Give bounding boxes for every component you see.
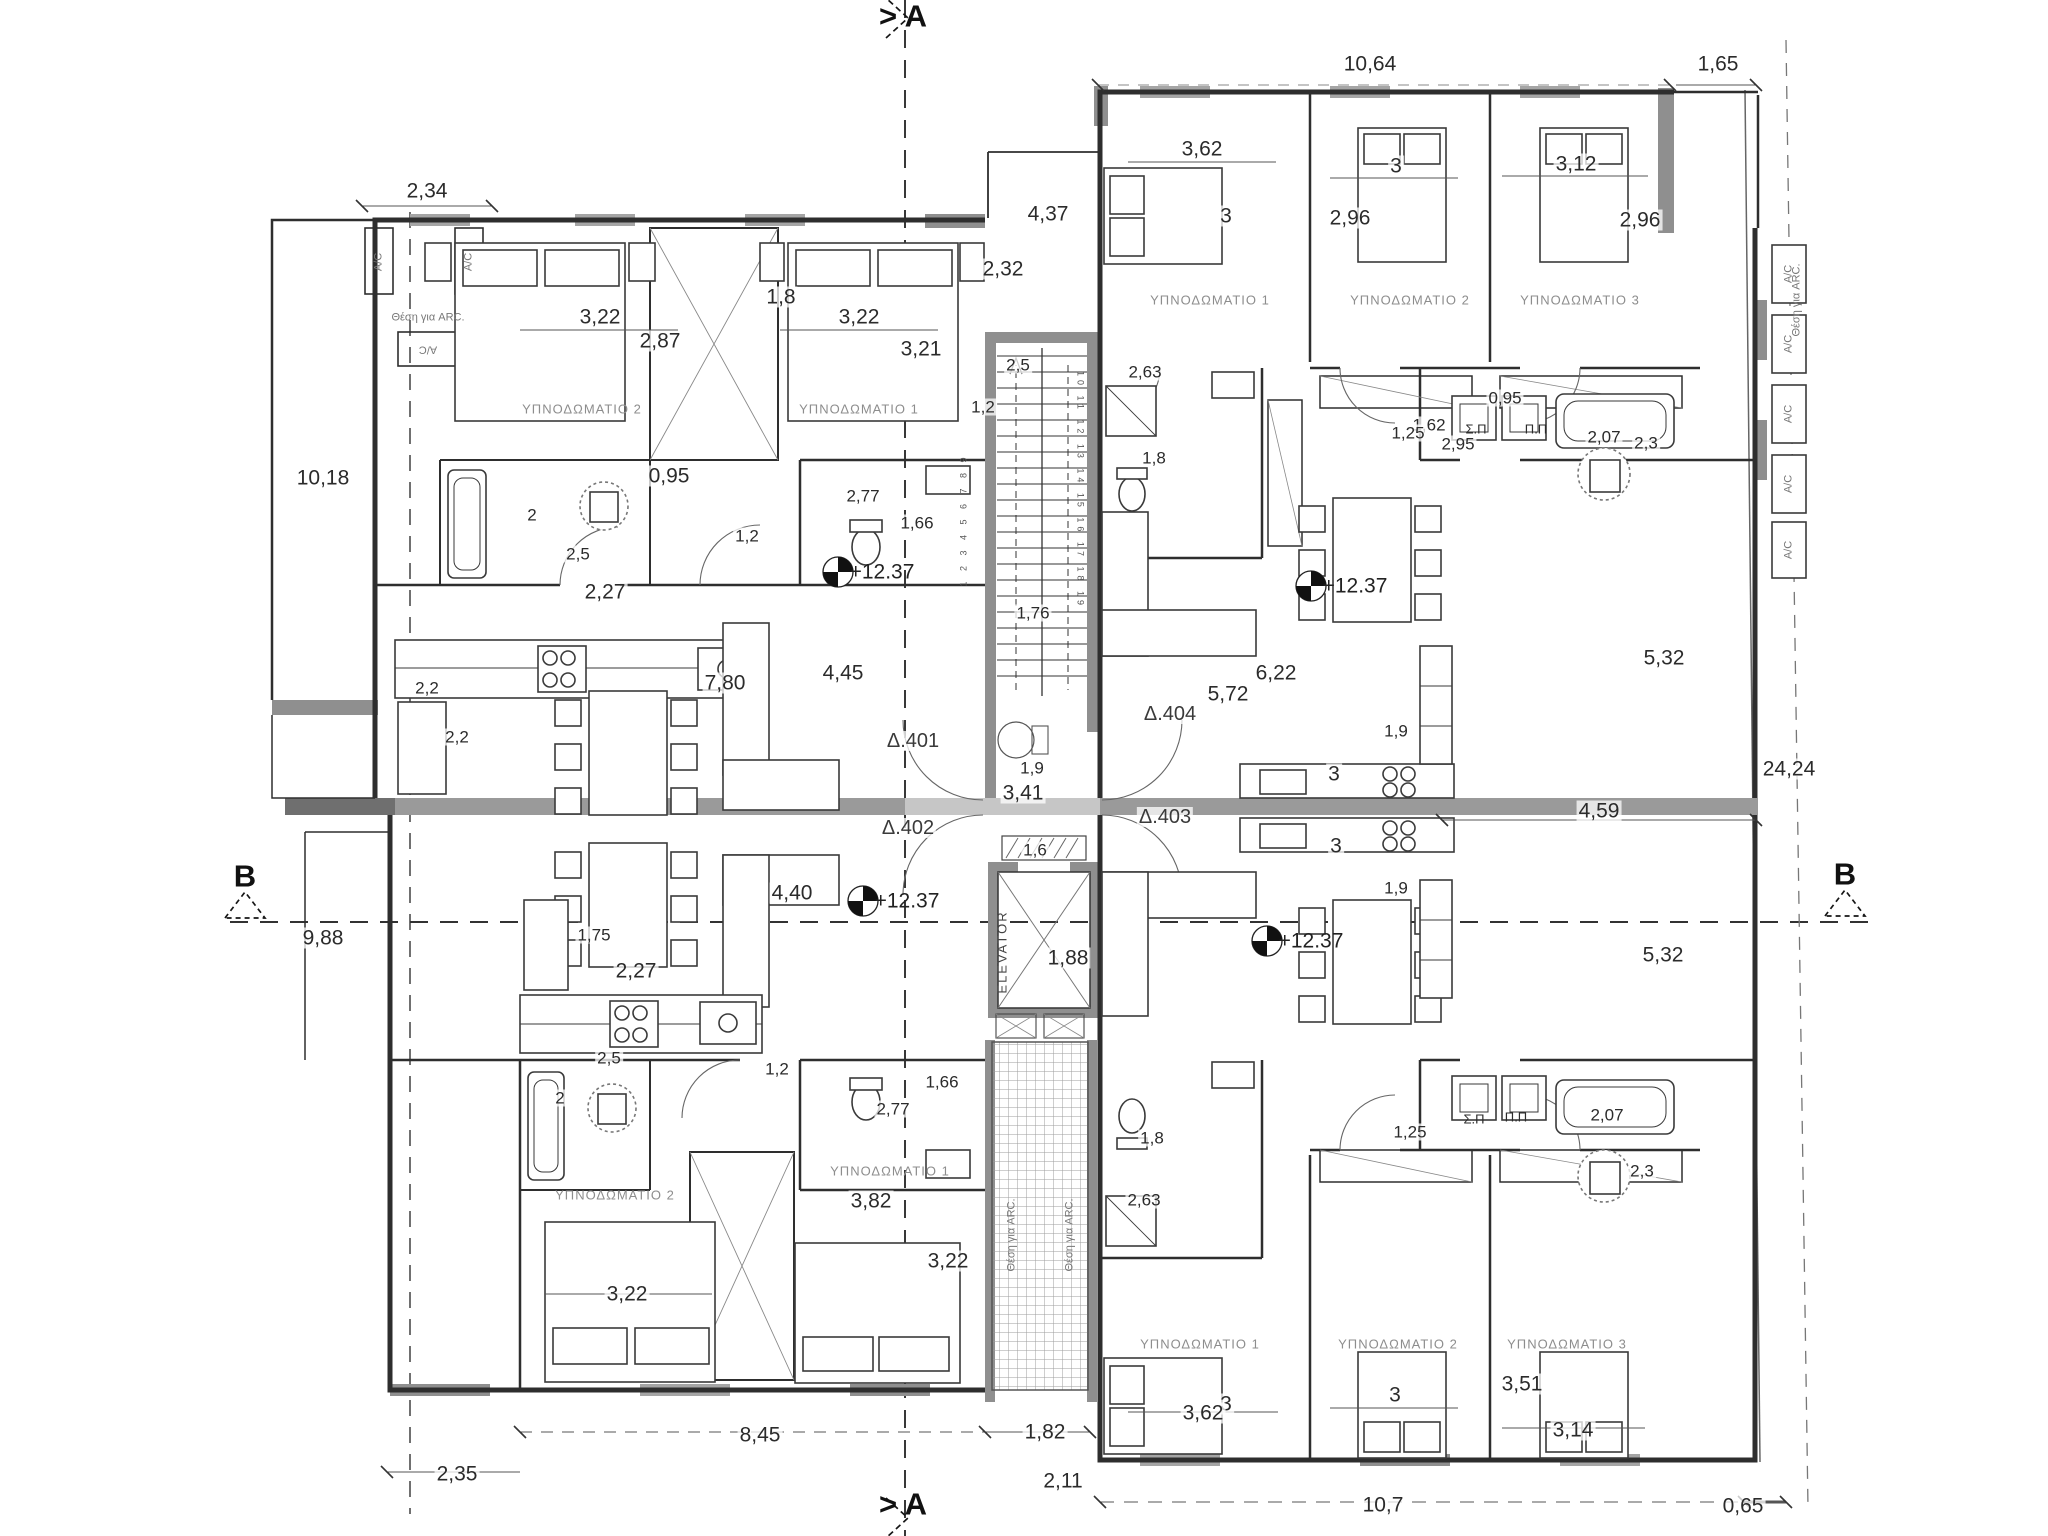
floor-plan-canvas: > A> ABB2,3410,182,22,29,882,353,222,871… — [0, 0, 2048, 1536]
elevator-core — [992, 836, 1090, 1390]
entry-vestibule-hatch — [992, 1042, 1088, 1390]
floor-plan-drawing — [0, 0, 2048, 1536]
